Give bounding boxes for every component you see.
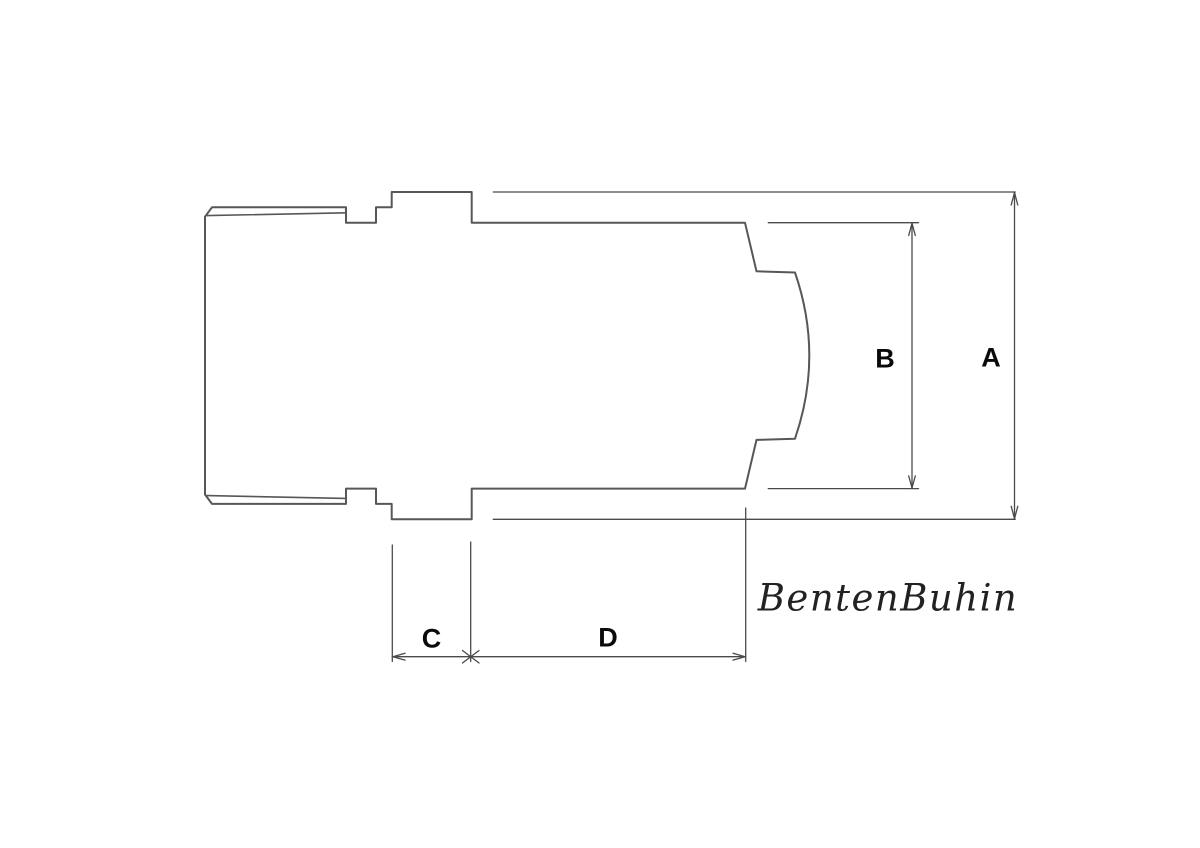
brand-signature: BentenBuhin (758, 580, 1019, 617)
bottom-chamfer-edge-line (207, 496, 346, 499)
dimension-label-b: B (875, 345, 895, 372)
technical-drawing-page: A B C D BentenBuhin (0, 0, 1200, 848)
dimension-a (493, 192, 1018, 519)
part-drawing-svg (0, 0, 1200, 848)
dimension-label-a: A (981, 344, 1001, 371)
dimension-label-d: D (598, 624, 618, 651)
part-outline (205, 192, 809, 519)
dimension-c-d (392, 508, 745, 663)
dimension-label-c: C (422, 625, 442, 652)
top-chamfer-edge-line (207, 213, 346, 216)
part-profile-path (205, 192, 809, 519)
dimension-b (768, 223, 918, 489)
